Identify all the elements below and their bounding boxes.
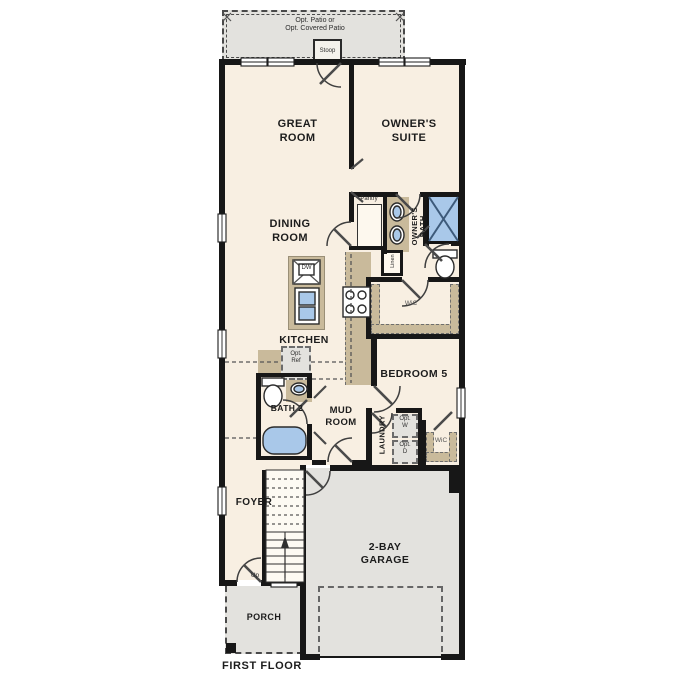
foyer-label: FOYER — [228, 497, 280, 510]
wall-garage-bottom-r — [441, 654, 465, 660]
patio-label: Opt. Patio or Opt. Covered Patio — [240, 17, 390, 33]
porch-label: PORCH — [238, 612, 290, 623]
great-room-label: GREAT ROOM — [250, 118, 345, 146]
wall-laundry-top-l — [366, 408, 372, 413]
wall-wic1-top-r — [428, 277, 465, 282]
garage-door-dash — [318, 586, 443, 652]
owners-suite-label: OWNER'S SUITE — [363, 118, 455, 146]
opt-d-label: Opt. D — [392, 442, 418, 456]
wall-wic1-top-l — [366, 277, 402, 282]
wall-shower-bottom-r — [451, 242, 465, 246]
wall-bath2-bottom — [256, 456, 312, 460]
porch-post — [226, 643, 236, 653]
bedroom5-label: BEDROOM 5 — [368, 368, 460, 381]
garage-label: 2-BAY GARAGE — [347, 541, 423, 567]
wall-bath2-right-a — [307, 373, 312, 398]
wall-garage-notch — [449, 465, 465, 493]
dw-label: DW — [293, 265, 320, 272]
wall-top — [219, 59, 466, 65]
shower — [426, 194, 461, 244]
bath2-label: BATH 2 — [264, 403, 310, 414]
wic2-label: WiC — [430, 437, 452, 444]
wall-wic2-left — [422, 420, 426, 465]
wall-left — [219, 59, 225, 586]
linen-label: Linen — [390, 247, 396, 275]
pantry-label: Pantry — [352, 196, 386, 203]
opt-ref-label: Opt. Ref — [281, 351, 311, 365]
wall-garage-top — [330, 465, 465, 471]
owners-bath-label: OWNER'S BATH — [411, 190, 428, 262]
wall-foyer-bottom-l — [219, 580, 237, 586]
wic1-shelf-right — [450, 284, 459, 334]
wall-stair-left — [262, 470, 266, 580]
garage-door-sill — [320, 656, 441, 658]
wall-wic1-left — [366, 277, 371, 339]
wall-right — [459, 59, 465, 660]
wall-bath2-left — [256, 373, 261, 460]
pantry-shelf — [357, 204, 382, 248]
wall-pantry-bottom — [349, 246, 387, 250]
laundry-label: LAUNDRY — [377, 405, 386, 465]
wall-wic1-bottom — [366, 334, 465, 339]
wall-bath2-right-b — [307, 424, 312, 460]
wall-garage-left — [300, 465, 306, 660]
wall-great-owners — [349, 59, 354, 169]
up-label: Up — [246, 572, 264, 579]
opt-w-label: Opt. W — [392, 416, 418, 430]
wall-foyer-bottom-r — [261, 580, 305, 586]
owners-vanity-counter — [387, 197, 409, 252]
wall-bath2-top — [256, 373, 312, 377]
dining-room-label: DINING ROOM — [245, 218, 335, 246]
wic1-shelf-bottom — [371, 324, 459, 334]
wall-mud-bottom-l — [312, 460, 326, 465]
stoop-label: Stoop — [313, 48, 342, 55]
wic1-label: WiC — [400, 300, 422, 307]
plan-title: FIRST FLOOR — [222, 660, 352, 674]
floor-plan: Opt. Patio or Opt. Covered Patio Stoop G… — [0, 0, 687, 687]
wall-mud-right — [366, 412, 372, 465]
mud-room-label: MUD ROOM — [318, 405, 364, 429]
kitchen-label: KITCHEN — [273, 334, 335, 347]
